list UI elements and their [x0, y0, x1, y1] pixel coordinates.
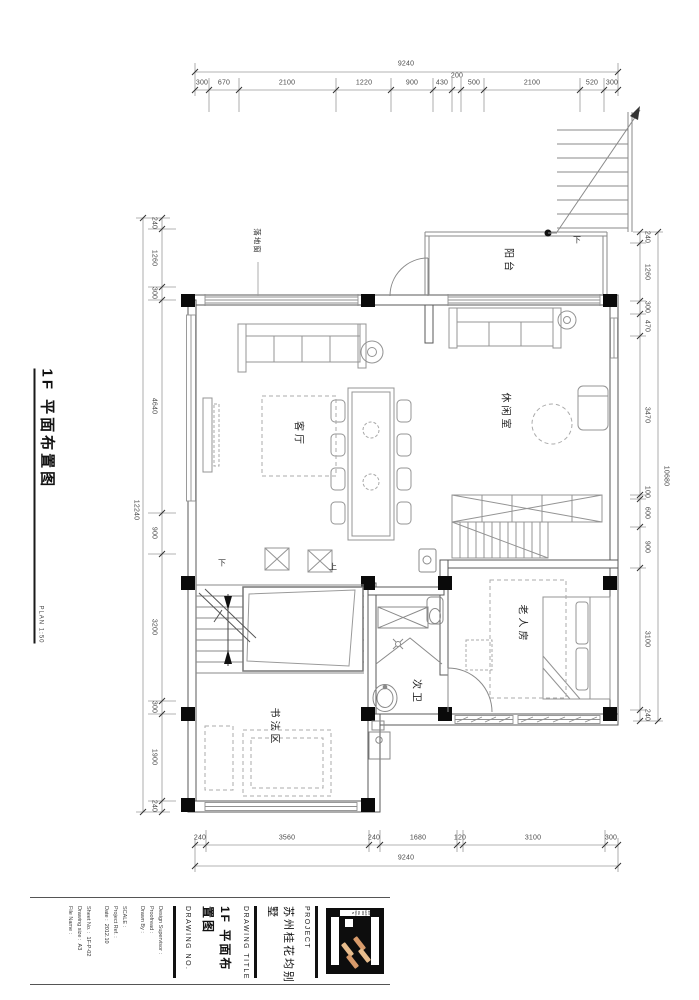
living-furniture: [203, 324, 411, 572]
bedroom-furniture: [466, 580, 610, 699]
divider-bar: [173, 906, 176, 978]
dim-label: 300: [151, 287, 158, 299]
dim-label: 200: [451, 73, 463, 80]
dim-label: 670: [218, 80, 230, 87]
dim-label: 240: [151, 217, 158, 229]
logo-text: INTERIOR DESIGN: [340, 910, 370, 916]
leisure-furniture: [449, 308, 608, 558]
sheet-scale-note: PLAN 1:50: [38, 605, 44, 643]
dim-label: 3470: [644, 407, 651, 423]
dim-label: 240: [368, 835, 380, 842]
sheet-title-text: 1F 平面布置图: [38, 369, 59, 490]
dimension-lines: [136, 63, 663, 872]
logo-band: [371, 917, 379, 965]
field-label: SCALE :: [121, 906, 127, 927]
field-label: Date :: [103, 906, 109, 921]
dim-label: 240: [644, 709, 651, 721]
dim-left-total: 12240: [133, 500, 140, 520]
dim-label: 3100: [525, 835, 541, 842]
field-group-staff: Design Supervisor : Proofread : Drawn By…: [137, 906, 164, 984]
dim-label: 1220: [356, 80, 372, 87]
dim-label: 3560: [279, 835, 295, 842]
main-stair: [196, 585, 364, 673]
field-label: Project Ref. :: [112, 906, 118, 938]
field-label: Design Supervisor :: [157, 906, 163, 954]
logo-stick: [358, 948, 371, 963]
dim-label: 300: [606, 80, 618, 87]
walls: [188, 295, 618, 812]
dim-label: 600: [644, 507, 651, 519]
studio-logo: INTERIOR DESIGN: [326, 908, 384, 974]
dim-label: 1680: [410, 835, 426, 842]
dim-right-total: 10680: [663, 466, 670, 486]
dim-label: 500: [468, 80, 480, 87]
balcony-stair-down-mark: 下: [573, 235, 581, 246]
dim-label: 240: [644, 231, 651, 243]
field-label: Sheet No. :: [85, 906, 91, 934]
drawing-title-value: 1F 平面布置图: [200, 906, 234, 984]
field-value: A3: [76, 944, 82, 951]
field-label: Drawing size :: [76, 906, 82, 941]
stair-down-mark: 下: [218, 558, 226, 569]
dim-label: 300: [151, 701, 158, 713]
field-value: 2012.10: [103, 924, 109, 944]
drawing-title-label: DRAWING TITLE: [242, 906, 249, 984]
dim-label: 3200: [151, 619, 158, 635]
room-label-living: 客厅: [293, 421, 308, 447]
dim-label: 1260: [644, 264, 651, 280]
dim-top-total: 9240: [398, 61, 414, 68]
room-label-leisure: 休闲室: [500, 393, 515, 432]
logo-stick: [346, 954, 359, 969]
room-label-balcony: 阳台: [503, 248, 518, 274]
field-group-sheet: Sheet No. :1F-P-02 Drawing size :A3 File…: [65, 906, 92, 984]
dim-label: 300: [196, 80, 208, 87]
drawing-sheet: 1F 平面布置图 PLAN 1:50 阳台 客厅 休闲室 老人房 次卫 书法区 …: [0, 0, 699, 1000]
dim-label: 1900: [151, 749, 158, 765]
field-value: 1F-P-02: [85, 937, 91, 957]
dim-label: 470: [644, 320, 651, 332]
title-block: INTERIOR DESIGN PROJECT 苏州桂花均别墅 DRAWING …: [30, 897, 390, 985]
dim-label: 300: [644, 301, 651, 313]
divider-bar: [315, 906, 318, 978]
dim-label: 3100: [644, 631, 651, 647]
dim-label: 430: [436, 80, 448, 87]
dim-label: 900: [151, 527, 158, 539]
drawing-no-label: DRAWING NO.: [184, 906, 191, 984]
dim-label: 120: [454, 835, 466, 842]
dim-label: 1260: [151, 250, 158, 266]
divider-bar: [254, 906, 257, 978]
dim-label: 4640: [151, 398, 158, 414]
field-label: File Name :: [67, 906, 73, 934]
dimension-ticks: [140, 69, 661, 869]
room-label-calligraphy: 书法区: [269, 708, 284, 747]
field-label: Drawn By :: [139, 906, 145, 933]
dim-bottom-total: 9240: [398, 855, 414, 862]
logo-chip: [345, 919, 353, 927]
field-label: Proofread :: [148, 906, 154, 933]
sheet-title-vertical: 1F 平面布置图 PLAN 1:50: [34, 369, 66, 644]
plan-linework: [0, 0, 699, 1000]
dim-label: 240: [194, 835, 206, 842]
dim-label: 520: [586, 80, 598, 87]
window-symbols: [187, 294, 618, 811]
stair-up-mark: 上: [329, 562, 337, 573]
dim-label: 2100: [279, 80, 295, 87]
project-name: 苏州桂花均别墅: [265, 906, 297, 984]
dim-label: 240: [151, 800, 158, 812]
project-label: PROJECT: [303, 906, 310, 984]
dim-label: 100: [644, 486, 651, 498]
dim-label: 2100: [524, 80, 540, 87]
dim-label: 300: [605, 835, 617, 842]
balcony-and-outdoor-stair: [425, 106, 640, 295]
field-group-scale-date: SCALE : Project Ref. : Date :2012.10: [101, 906, 128, 984]
dim-label: 900: [644, 541, 651, 553]
room-label-bath: 次卫: [411, 679, 426, 705]
logo-band: [331, 917, 339, 965]
room-label-elder: 老人房: [517, 605, 532, 644]
window-annotation: 落地窗: [252, 228, 263, 254]
dim-label: 900: [406, 80, 418, 87]
